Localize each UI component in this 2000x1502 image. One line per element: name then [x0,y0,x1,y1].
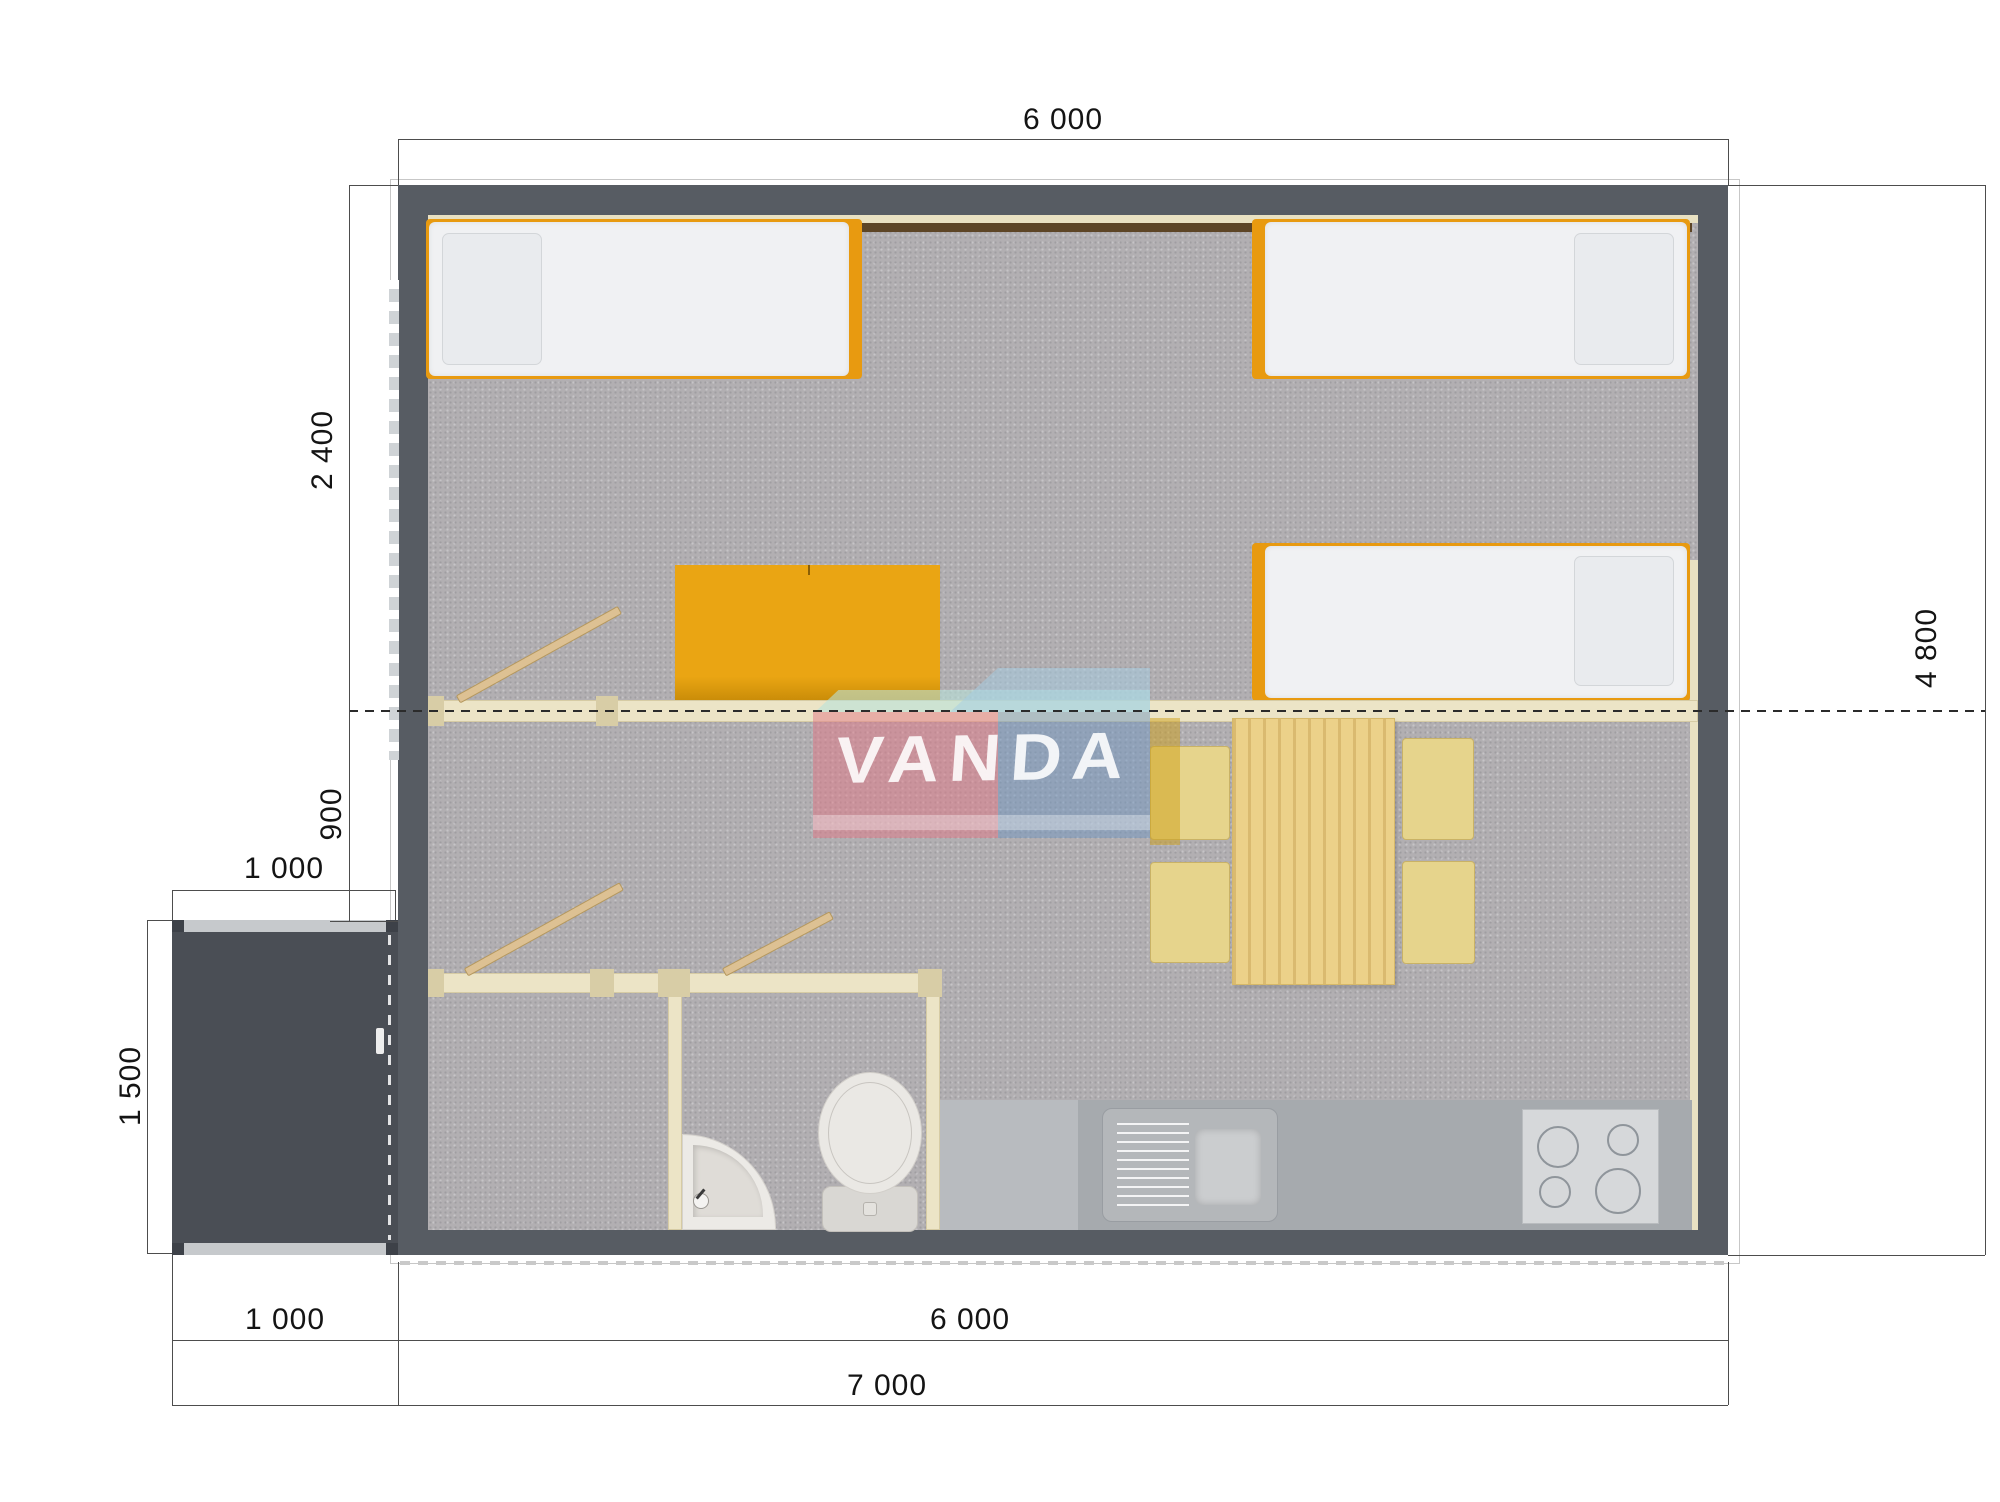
sink-basin [1195,1129,1261,1205]
dimension-line [1728,1262,1729,1405]
door-handle [376,1028,384,1054]
dimension-line [172,1340,1728,1341]
chair [1402,861,1475,964]
bed-top-left [426,219,862,379]
porch-post [172,1243,184,1255]
dimension-line [395,890,396,920]
dimension-line [398,1262,399,1405]
bed-top-right [1252,219,1690,379]
toilet-bowl [818,1072,922,1194]
dimension-line [147,1253,172,1254]
porch-post [386,1243,398,1255]
door-jamb [428,969,444,997]
dim-total-width: 7 000 [847,1369,927,1403]
dimension-line [398,139,1728,140]
dimension-line [1728,139,1729,185]
dimension-line [172,1405,1728,1406]
toilet-room-right-wall [926,973,940,1230]
kitchen-sink-unit [1102,1108,1278,1222]
flush-button [863,1202,877,1216]
bed-middle-right [1252,543,1690,701]
kitchen-cabinet [940,1100,1078,1230]
watermark-yellow-strip [1150,718,1180,845]
burner [1607,1124,1639,1156]
dim-porch-depth: 1 500 [114,1046,148,1126]
dim-bedroom-depth: 2 400 [306,410,340,490]
dimension-line [147,920,172,921]
bathroom-divider-wall [668,993,682,1230]
dim-building-height: 4 800 [1910,608,1944,688]
pillow [442,233,542,365]
drainboard [1117,1123,1189,1211]
wardrobe [675,565,940,701]
door-jamb [918,969,942,997]
pillow [1574,233,1674,365]
cooktop [1523,1110,1658,1223]
door-jamb [658,969,690,997]
dim-porch-width-bottom: 1 000 [245,1303,325,1337]
chair [1402,738,1474,840]
door-jamb [590,969,614,997]
burner [1595,1168,1641,1214]
faucet [693,1193,709,1209]
pillow [1574,556,1674,686]
dim-hall-depth: 900 [315,787,349,840]
dim-building-width-bottom: 6 000 [930,1303,1010,1337]
watermark-white-strip [813,815,1150,830]
dimension-line [349,185,350,921]
entrance-door-line [388,935,391,1240]
floor-plan-canvas: VANDA 6 000 2 400 900 1 000 1 500 1 000 … [0,0,2000,1502]
section-line [349,710,1985,712]
dimension-line [172,890,395,891]
burner [1539,1176,1571,1208]
porch-post [172,920,184,932]
dim-top-width: 6 000 [1023,103,1103,137]
left-wall-window [389,280,399,760]
toilet-seat [828,1082,912,1184]
dining-table [1232,718,1395,985]
dimension-line [172,1255,173,1405]
dimension-line [330,921,398,922]
dimension-line [1728,185,1985,186]
dimension-line [349,185,398,186]
burner [1537,1126,1579,1168]
dimension-line [1728,1255,1985,1256]
dimension-line [1985,185,1986,1255]
dimension-line [398,139,399,185]
porch [172,920,398,1255]
chair [1150,862,1230,963]
watermark-text: VANDA [833,717,1135,798]
eave-edge-dashes [400,1261,1730,1265]
porch-step-bottom [172,1243,398,1255]
dimension-line [172,890,173,920]
dim-porch-width: 1 000 [244,852,324,886]
